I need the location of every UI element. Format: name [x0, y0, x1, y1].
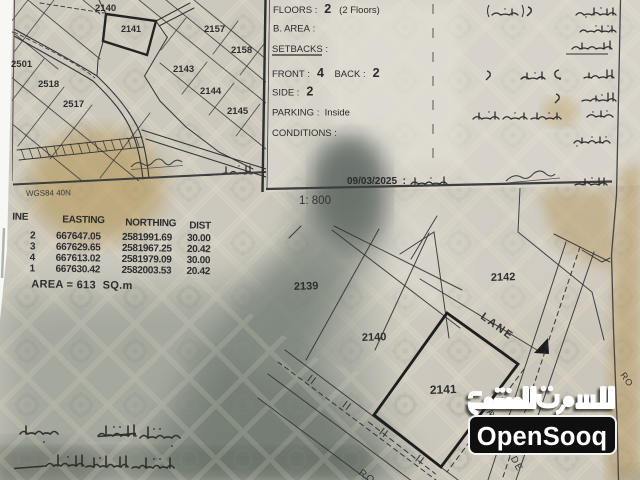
svg-text:2581967.25: 2581967.25 [122, 243, 173, 255]
svg-text:667613.02: 667613.02 [56, 253, 101, 265]
svg-text:2: 2 [30, 230, 36, 241]
svg-text:B. AREA :: B. AREA : [273, 24, 315, 35]
svg-text:2517: 2517 [63, 99, 84, 110]
svg-text:2157: 2157 [204, 24, 225, 35]
svg-text:4: 4 [30, 252, 36, 263]
svg-text:AREA = 613 SQ.m: AREA = 613 SQ.m [31, 278, 132, 292]
svg-text:2581991.69: 2581991.69 [122, 232, 173, 244]
svg-text:1: 800: 1: 800 [299, 195, 331, 207]
svg-text:CONDITIONS :: CONDITIONS : [272, 128, 337, 139]
svg-text:2501: 2501 [11, 59, 33, 70]
svg-text:20.42: 20.42 [186, 266, 210, 277]
svg-text:WGS84 40N: WGS84 40N [26, 188, 71, 198]
svg-text:OpenSooq: OpenSooq [477, 423, 608, 451]
svg-text:2140: 2140 [362, 331, 387, 344]
svg-text:2141: 2141 [121, 24, 141, 34]
svg-text:2141: 2141 [430, 382, 457, 397]
svg-text:INE: INE [12, 212, 29, 223]
svg-text:2144: 2144 [200, 86, 222, 97]
svg-text:PARKING : Inside: PARKING : Inside [272, 108, 350, 119]
svg-text:NORTHING: NORTHING [125, 217, 177, 229]
svg-text:2142: 2142 [491, 271, 516, 284]
svg-text:3: 3 [30, 241, 36, 252]
svg-text:30.00: 30.00 [187, 233, 211, 244]
svg-text:2158: 2158 [231, 45, 252, 56]
svg-text:FRONT : 4 BACK : 2: FRONT : 4 BACK : 2 [272, 66, 380, 80]
svg-text:SIDE : 2: SIDE : 2 [272, 85, 313, 99]
svg-text:2582003.53: 2582003.53 [121, 265, 172, 277]
svg-text:667629.65: 667629.65 [56, 242, 101, 254]
svg-text:SETBACKS :: SETBACKS : [272, 44, 328, 55]
svg-text:2518: 2518 [38, 79, 59, 90]
svg-text:2143: 2143 [173, 64, 194, 75]
svg-text:2139: 2139 [294, 280, 319, 293]
svg-text:1: 1 [29, 263, 35, 274]
svg-text:20.42: 20.42 [187, 244, 211, 255]
svg-text:DIST: DIST [189, 220, 211, 231]
svg-text:667647.05: 667647.05 [56, 231, 101, 243]
svg-text:2140: 2140 [95, 3, 116, 14]
svg-text:EASTING: EASTING [62, 214, 105, 226]
svg-text:FLOORS : 2 (2 Floors): FLOORS : 2 (2 Floors) [273, 2, 380, 16]
svg-text:30.00: 30.00 [187, 255, 211, 266]
svg-text:2581979.09: 2581979.09 [122, 254, 173, 266]
svg-text:667630.42: 667630.42 [55, 264, 100, 276]
svg-text:2145: 2145 [227, 106, 249, 117]
